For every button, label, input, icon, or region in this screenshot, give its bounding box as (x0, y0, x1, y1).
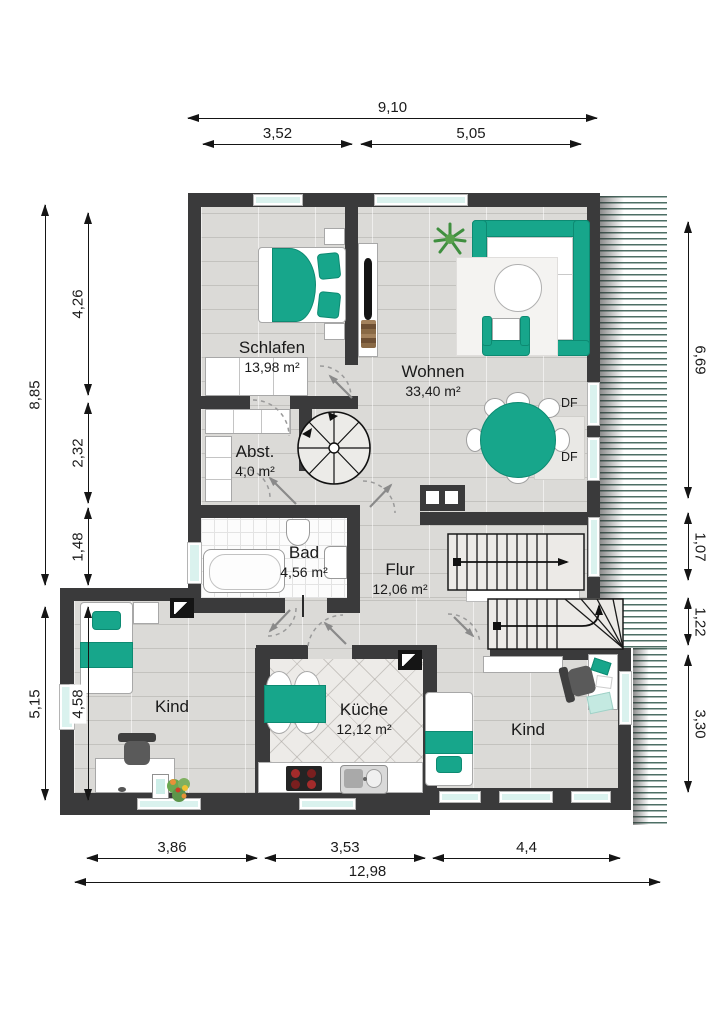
dimension-left-1: 4,26 (88, 213, 89, 395)
dimension-value: 2,32 (70, 433, 87, 472)
dimension-value: 3,52 (259, 125, 296, 142)
dimension-value: 6,69 (692, 340, 709, 379)
dimension-top-right: 5,05 (361, 144, 581, 145)
dimension-right-4: 3,30 (688, 655, 689, 792)
dimension-left-2: 2,32 (88, 403, 89, 503)
dimension-right-3: 1,22 (688, 598, 689, 645)
room-label-abstellraum: Abst. 4,0 m² (235, 442, 275, 480)
dimension-right-1: 6,69 (688, 222, 689, 498)
room-area: 4,56 m² (280, 564, 327, 581)
dimension-value: 8,85 (27, 375, 44, 414)
room-name: Flur (372, 560, 427, 580)
room-area: 12,12 m² (336, 721, 391, 738)
dimension-value: 1,48 (70, 527, 87, 566)
room-name: Schlafen (239, 338, 305, 358)
room-label-flur: Flur 12,06 m² (372, 560, 427, 598)
dimension-left-total: 8,85 (45, 205, 46, 585)
roof-window-label: DF (561, 396, 578, 410)
room-label-kind-rechts: Kind (511, 720, 545, 740)
dimension-value: 4,26 (70, 284, 87, 323)
dimension-left-3: 1,48 (88, 508, 89, 585)
dimension-top-total: 9,10 (188, 118, 597, 119)
dimension-left-lower-inner: 4,58 (88, 607, 89, 800)
room-label-kind-links: Kind (155, 697, 189, 717)
room-name: Bad (280, 543, 327, 563)
room-area: 13,98 m² (239, 359, 305, 376)
room-label-bad: Bad 4,56 m² (280, 543, 327, 581)
dimension-value: 5,05 (452, 125, 489, 142)
dimension-bottom-total: 12,98 (75, 882, 660, 883)
dimension-value: 1,22 (692, 602, 709, 641)
dimension-top-left: 3,52 (203, 144, 352, 145)
dimension-right-2: 1,07 (688, 513, 689, 580)
dimension-value: 5,15 (27, 684, 44, 723)
room-label-kueche: Küche 12,12 m² (336, 700, 391, 738)
room-area: 33,40 m² (401, 383, 464, 400)
room-label-schlafen: Schlafen 13,98 m² (239, 338, 305, 376)
room-name: Wohnen (401, 362, 464, 382)
room-name: Kind (511, 720, 545, 740)
dimension-value: 9,10 (374, 99, 411, 116)
dimension-bottom-1: 3,86 (87, 858, 257, 859)
room-label-wohnen: Wohnen 33,40 m² (401, 362, 464, 400)
dimension-value: 3,86 (153, 839, 190, 856)
dimension-value: 4,4 (512, 839, 541, 856)
dimension-value: 3,53 (326, 839, 363, 856)
room-name: Kind (155, 697, 189, 717)
dimension-bottom-2: 3,53 (265, 858, 425, 859)
roof-window-label: DF (561, 450, 578, 464)
dimension-value: 4,58 (70, 684, 87, 723)
dimension-value: 12,98 (345, 863, 391, 880)
room-area: 4,0 m² (235, 463, 275, 480)
dimension-bottom-3: 4,4 (433, 858, 620, 859)
room-area: 12,06 m² (372, 581, 427, 598)
dimension-left-lower-outer: 5,15 (45, 607, 46, 800)
floor-plan: Schlafen 13,98 m² Wohnen 33,40 m² Abst. … (0, 0, 724, 1024)
room-name: Küche (336, 700, 391, 720)
dimension-value: 3,30 (692, 704, 709, 743)
dimension-value: 1,07 (692, 527, 709, 566)
room-name: Abst. (235, 442, 275, 462)
